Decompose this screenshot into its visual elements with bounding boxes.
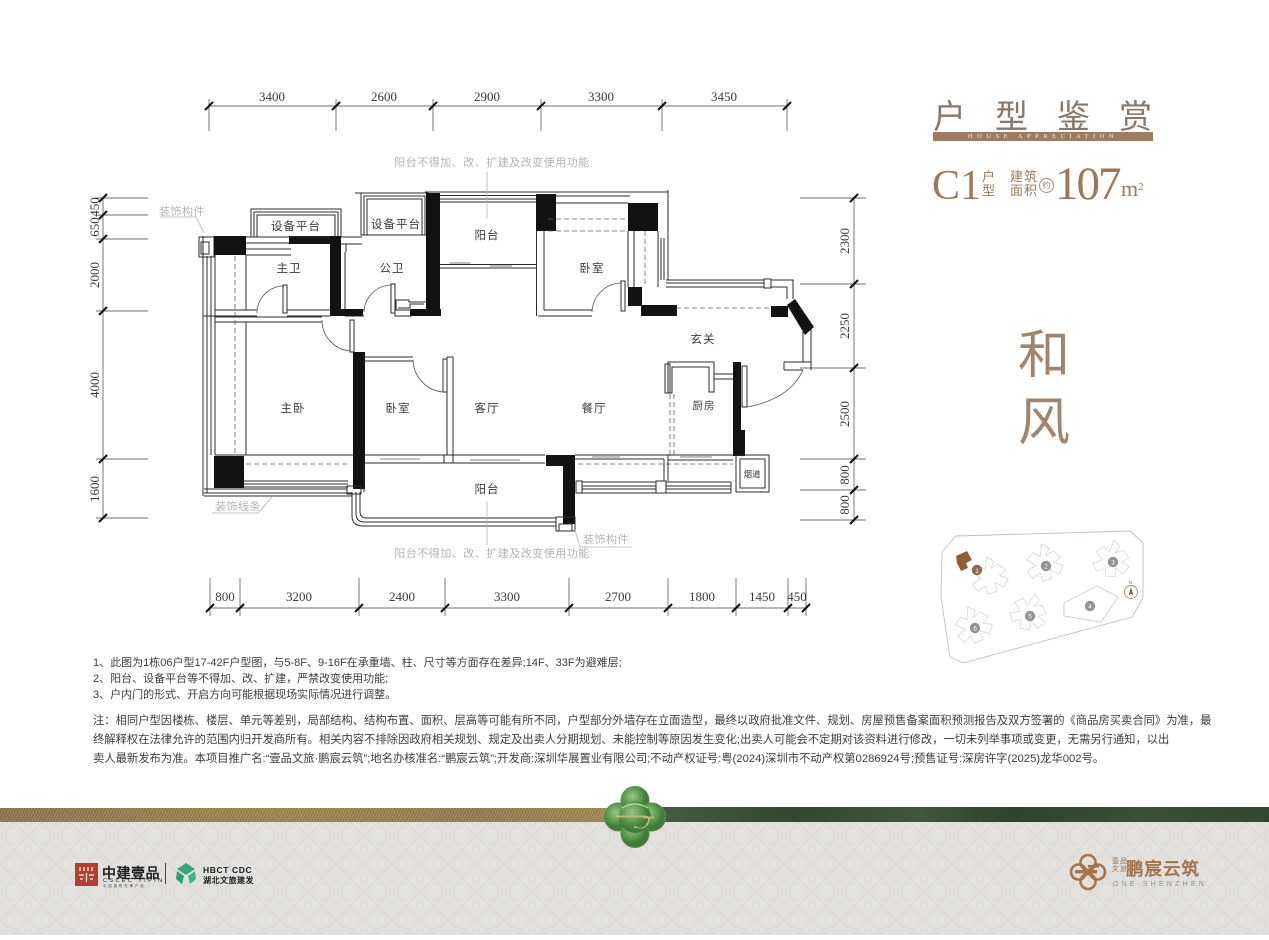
svg-text:卧室: 卧室: [580, 261, 605, 275]
svg-text:玄关: 玄关: [691, 332, 716, 346]
svg-text:装饰构件: 装饰构件: [583, 532, 629, 546]
svg-text:6: 6: [973, 626, 977, 633]
svg-text:阳台: 阳台: [475, 228, 500, 242]
svg-text:650: 650: [87, 217, 102, 237]
svg-text:阳台不得加、改、扩建及改变使用功能: 阳台不得加、改、扩建及改变使用功能: [394, 546, 590, 560]
svg-text:4000: 4000: [87, 372, 102, 398]
svg-text:450: 450: [787, 589, 807, 604]
svg-text:2500: 2500: [837, 401, 852, 427]
svg-text:2000: 2000: [87, 262, 102, 288]
svg-text:3: 3: [1111, 560, 1115, 567]
svg-text:800: 800: [837, 465, 852, 485]
svg-text:烟道: 烟道: [743, 469, 761, 479]
svg-text:1600: 1600: [87, 476, 102, 502]
svg-text:餐厅: 餐厅: [582, 401, 607, 415]
svg-text:3400: 3400: [259, 89, 285, 104]
svg-text:装饰线条: 装饰线条: [215, 499, 261, 513]
svg-text:5: 5: [1028, 614, 1032, 621]
svg-text:3450: 3450: [711, 89, 737, 104]
svg-text:2700: 2700: [605, 589, 631, 604]
svg-text:1: 1: [975, 568, 979, 575]
svg-text:800: 800: [215, 589, 235, 604]
svg-text:4: 4: [1088, 604, 1092, 611]
svg-text:2: 2: [1044, 564, 1048, 571]
svg-text:设备平台: 设备平台: [371, 217, 421, 231]
svg-text:主卫: 主卫: [277, 262, 302, 275]
svg-text:厨房: 厨房: [693, 399, 716, 412]
svg-text:3200: 3200: [286, 589, 312, 604]
svg-text:主卧: 主卧: [281, 402, 306, 415]
svg-text:3300: 3300: [494, 589, 520, 604]
svg-text:阳台不得加、改、扩建及改变使用功能: 阳台不得加、改、扩建及改变使用功能: [394, 155, 590, 169]
svg-text:450: 450: [87, 197, 102, 217]
svg-text:公卫: 公卫: [380, 262, 405, 275]
svg-text:设备平台: 设备平台: [271, 219, 321, 233]
svg-text:阳台: 阳台: [475, 482, 500, 496]
svg-text:装饰构件: 装饰构件: [159, 204, 205, 218]
svg-text:N: N: [1129, 580, 1132, 585]
svg-text:客厅: 客厅: [475, 401, 500, 415]
svg-text:800: 800: [837, 495, 852, 515]
svg-text:2250: 2250: [837, 313, 852, 339]
svg-text:1450: 1450: [749, 589, 775, 604]
svg-text:2300: 2300: [837, 228, 852, 254]
svg-text:卧室: 卧室: [386, 401, 411, 415]
svg-text:2600: 2600: [371, 89, 397, 104]
svg-text:2900: 2900: [474, 89, 500, 104]
svg-text:1800: 1800: [689, 589, 715, 604]
svg-text:2400: 2400: [389, 589, 415, 604]
svg-text:3300: 3300: [588, 89, 614, 104]
